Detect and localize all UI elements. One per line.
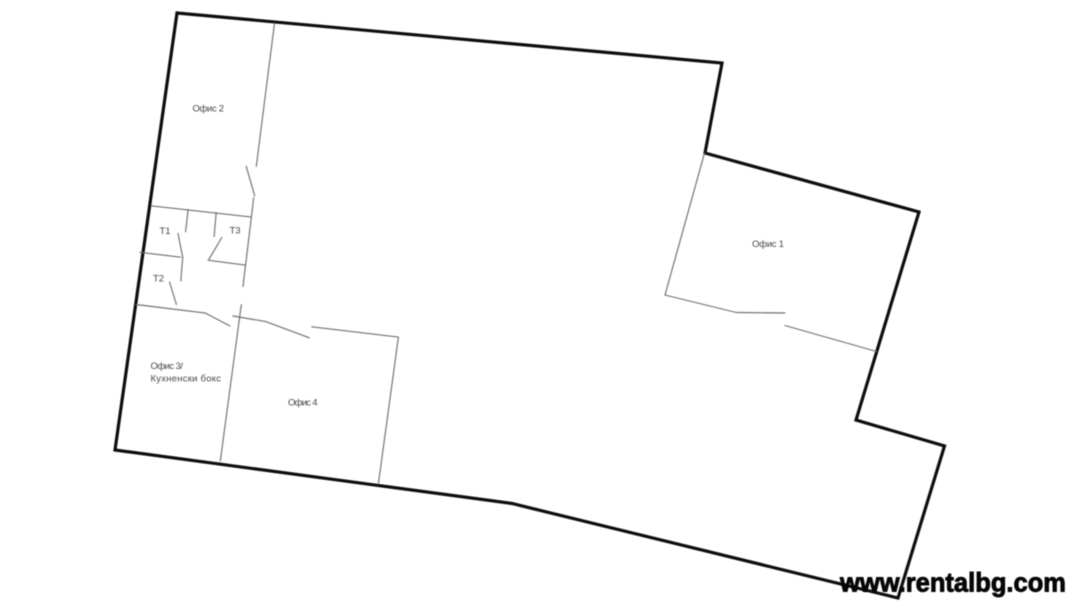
svg-text:Кухненски бокс: Кухненски бокс [151, 374, 222, 385]
svg-text:Т2: Т2 [153, 274, 164, 285]
svg-text:Офис 1: Офис 1 [752, 239, 784, 250]
svg-text:Т3: Т3 [230, 226, 241, 237]
svg-text:Офис 2: Офис 2 [193, 104, 225, 115]
svg-text:Т1: Т1 [160, 226, 171, 237]
svg-text:www.rentalbg.com: www.rentalbg.com [839, 568, 1066, 598]
svg-text:Офис 3/: Офис 3/ [151, 361, 184, 372]
svg-text:Офис 4: Офис 4 [288, 398, 318, 409]
